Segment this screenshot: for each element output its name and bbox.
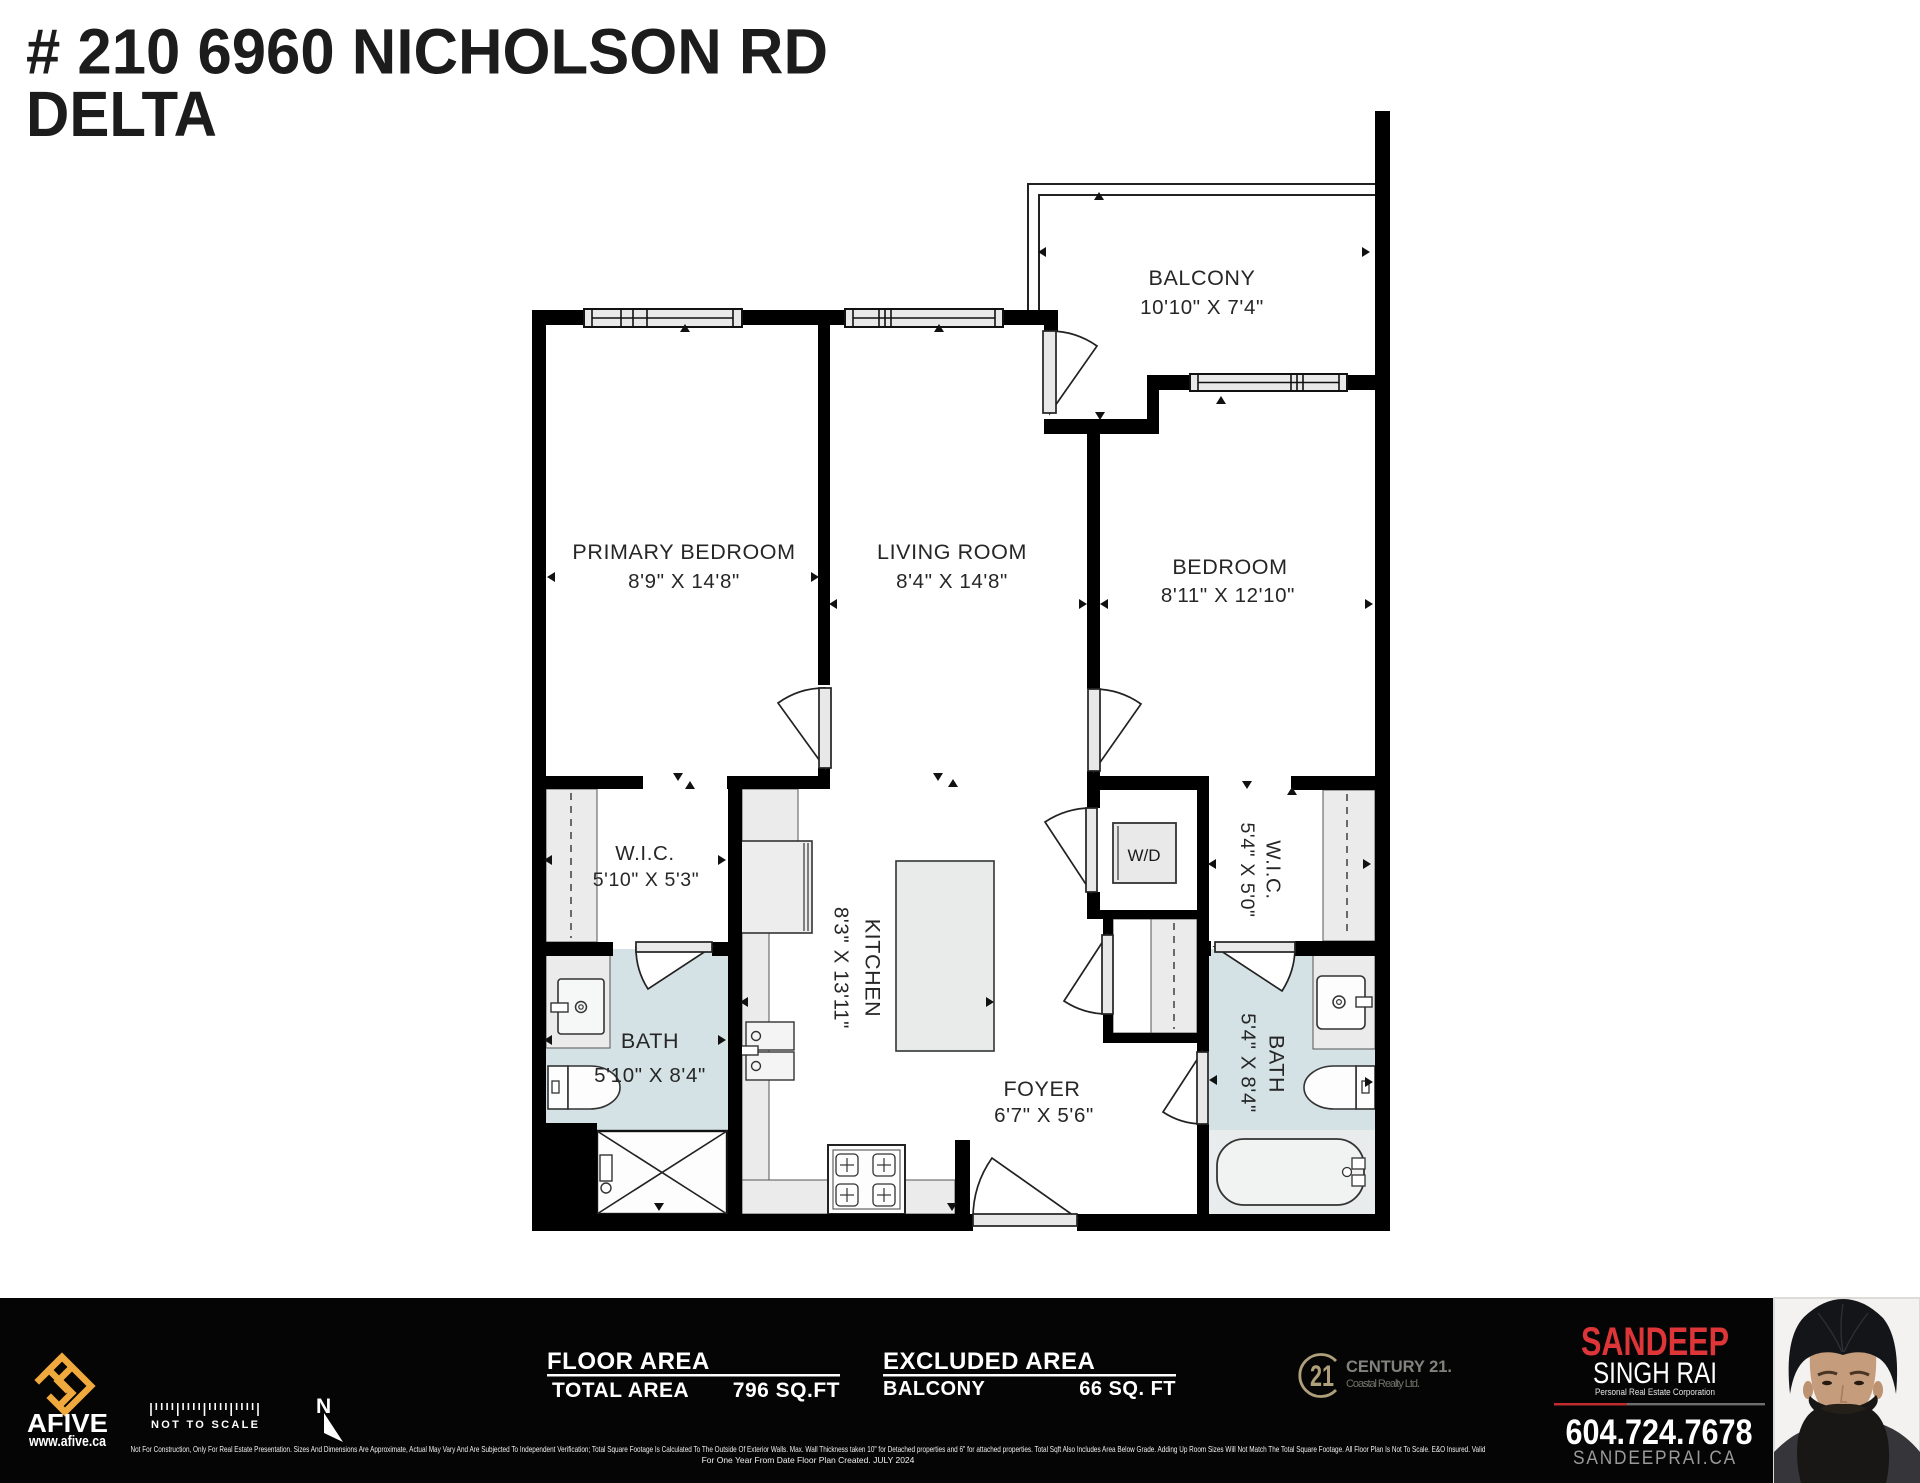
svg-text:BATH: BATH [1264, 1035, 1288, 1093]
svg-text:LIVING ROOM: LIVING ROOM [877, 540, 1027, 564]
svg-text:DELTA: DELTA [26, 78, 217, 150]
svg-text:604.724.7678: 604.724.7678 [1566, 1413, 1753, 1452]
svg-text:W.I.C.: W.I.C. [1262, 840, 1285, 899]
svg-text:W/D: W/D [1127, 846, 1160, 865]
svg-text:N: N [316, 1395, 331, 1418]
svg-text:# 210 6960 NICHOLSON RD: # 210 6960 NICHOLSON RD [26, 16, 828, 88]
svg-text:6'7" X 5'6": 6'7" X 5'6" [994, 1104, 1094, 1127]
svg-text:8'11" X 12'10": 8'11" X 12'10" [1161, 584, 1295, 607]
svg-text:Personal Real Estate Corporati: Personal Real Estate Corporation [1595, 1387, 1715, 1398]
svg-text:FLOOR AREA: FLOOR AREA [547, 1348, 710, 1375]
svg-text:5'4" X 8'4": 5'4" X 8'4" [1237, 1013, 1260, 1113]
svg-text:8'9" X 14'8": 8'9" X 14'8" [628, 570, 740, 593]
svg-text:BEDROOM: BEDROOM [1172, 555, 1287, 579]
svg-text:W.I.C.: W.I.C. [615, 842, 674, 865]
svg-text:KITCHEN: KITCHEN [860, 919, 884, 1018]
svg-text:796 SQ.FT: 796 SQ.FT [733, 1379, 840, 1402]
svg-text:21: 21 [1310, 1360, 1334, 1393]
svg-text:8'4" X 14'8": 8'4" X 14'8" [896, 570, 1008, 593]
svg-text:SINGH RAI: SINGH RAI [1593, 1357, 1717, 1390]
svg-text:SANDEEPRAI.CA: SANDEEPRAI.CA [1573, 1448, 1737, 1469]
svg-text:BATH: BATH [621, 1029, 679, 1053]
svg-text:www.afive.ca: www.afive.ca [28, 1434, 107, 1450]
svg-text:EXCLUDED AREA: EXCLUDED AREA [883, 1348, 1095, 1375]
svg-text:PRIMARY BEDROOM: PRIMARY BEDROOM [572, 540, 795, 564]
svg-text:66 SQ. FT: 66 SQ. FT [1079, 1378, 1176, 1400]
svg-text:FOYER: FOYER [1003, 1077, 1080, 1101]
svg-text:Coastal Realty Ltd.: Coastal Realty Ltd. [1346, 1378, 1420, 1390]
svg-text:BALCONY: BALCONY [883, 1378, 986, 1400]
svg-text:5'10" X 8'4": 5'10" X 8'4" [594, 1064, 706, 1087]
svg-text:TOTAL AREA: TOTAL AREA [552, 1379, 689, 1402]
svg-text:For One Year From Date Floor P: For One Year From Date Floor Plan Create… [702, 1455, 915, 1465]
svg-text:BALCONY: BALCONY [1149, 266, 1256, 290]
svg-text:5'10" X 5'3": 5'10" X 5'3" [593, 869, 700, 891]
svg-text:10'10" X 7'4": 10'10" X 7'4" [1140, 296, 1264, 319]
svg-text:5'4" X 5'0": 5'4" X 5'0" [1236, 822, 1258, 917]
svg-text:CENTURY 21.: CENTURY 21. [1346, 1358, 1452, 1376]
svg-text:8'3" X 13'11": 8'3" X 13'11" [830, 907, 853, 1029]
svg-text:Not For Construction, Only For: Not For Construction, Only For Real Esta… [131, 1444, 1486, 1454]
